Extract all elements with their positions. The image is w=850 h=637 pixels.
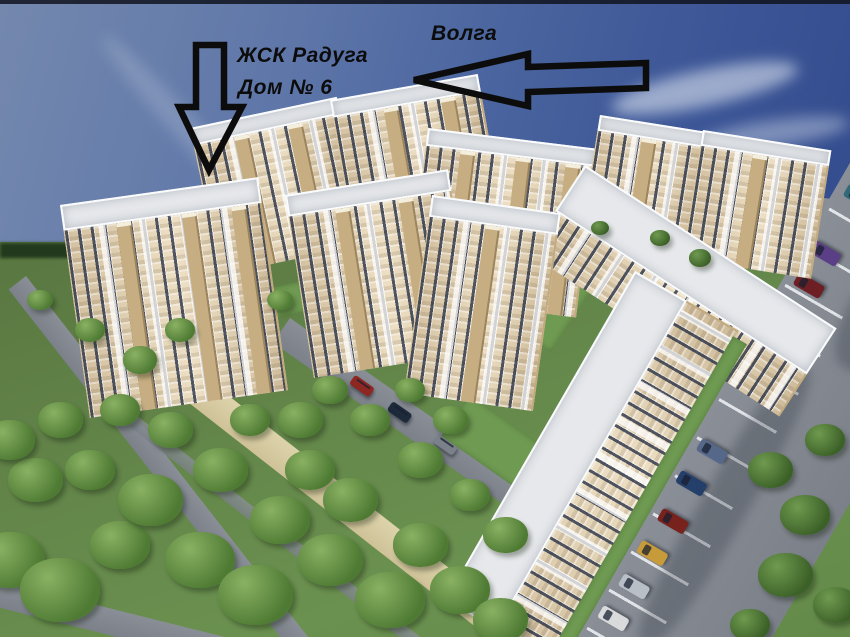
tree xyxy=(450,479,490,511)
tree xyxy=(193,448,248,492)
tree xyxy=(165,318,195,342)
tree xyxy=(591,221,609,235)
car-windshield xyxy=(603,609,614,621)
tree xyxy=(267,290,293,311)
tree xyxy=(805,424,845,456)
tree xyxy=(27,290,53,311)
car-windshield xyxy=(642,544,653,556)
tree xyxy=(433,406,468,434)
tree xyxy=(38,402,83,438)
car-windshield xyxy=(623,578,634,590)
tree xyxy=(218,565,293,625)
tree xyxy=(75,318,105,342)
car-windshield xyxy=(662,512,673,524)
parked-car xyxy=(349,375,375,398)
tree xyxy=(123,346,157,373)
tree xyxy=(298,534,363,586)
tree xyxy=(393,523,448,567)
car-windshield xyxy=(393,405,408,417)
tree xyxy=(100,394,140,426)
tree xyxy=(20,558,100,622)
tree xyxy=(250,496,310,544)
house-6-building xyxy=(60,177,288,418)
tree xyxy=(473,598,528,637)
tree xyxy=(65,450,115,490)
tree xyxy=(285,450,335,490)
tree xyxy=(230,404,270,436)
tree xyxy=(8,458,63,502)
tree xyxy=(395,378,425,402)
parked-car xyxy=(387,401,413,424)
tree xyxy=(90,521,150,569)
complex-name-label: ЖСК Радуга xyxy=(237,44,368,68)
tree xyxy=(650,230,670,246)
tree xyxy=(148,412,193,448)
tree xyxy=(780,495,830,535)
tree xyxy=(730,609,770,637)
tree xyxy=(350,404,390,436)
tree xyxy=(118,474,183,526)
car-windshield xyxy=(701,442,712,454)
tree xyxy=(689,249,711,267)
car-windshield xyxy=(798,277,809,289)
tree xyxy=(748,452,793,488)
tree xyxy=(483,517,528,553)
tree xyxy=(813,587,850,623)
top-border-strip xyxy=(0,0,850,4)
car-windshield xyxy=(356,378,371,390)
aerial-render-scene: ЖСК Радуга Дом № 6 Волга xyxy=(0,0,850,637)
tree xyxy=(758,553,813,597)
river-name-label: Волга xyxy=(431,22,497,46)
car-windshield xyxy=(681,474,692,486)
tree xyxy=(278,402,323,438)
tree xyxy=(312,376,348,405)
house-number-label: Дом № 6 xyxy=(238,76,332,100)
building-center-tower xyxy=(404,195,561,411)
tree xyxy=(398,442,443,478)
tree xyxy=(355,572,425,628)
tree xyxy=(323,478,378,522)
